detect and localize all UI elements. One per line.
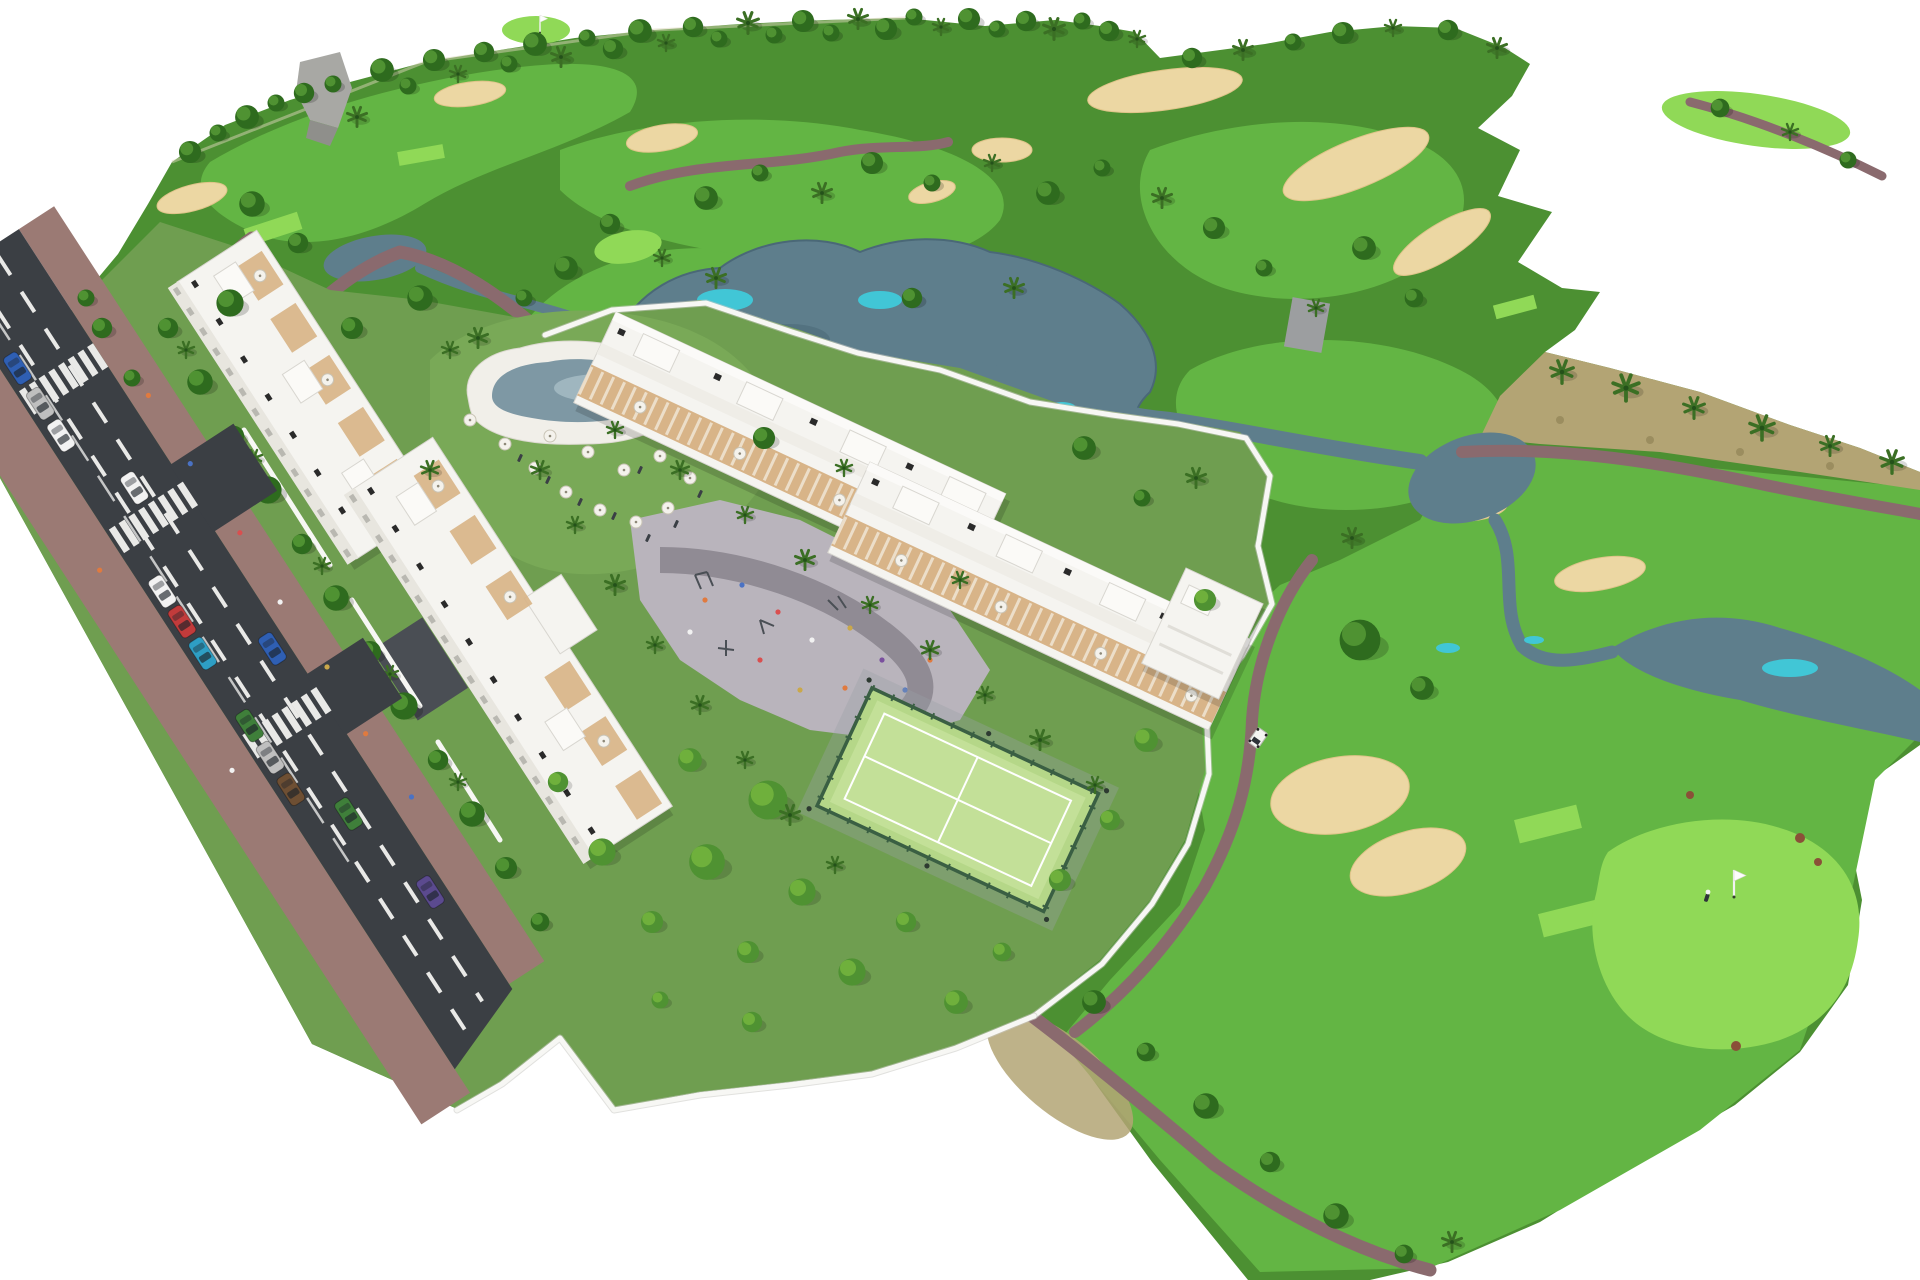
masterplan-render — [0, 0, 1920, 1280]
render-canvas — [0, 0, 1920, 1280]
main-putting-green — [1592, 820, 1859, 1050]
